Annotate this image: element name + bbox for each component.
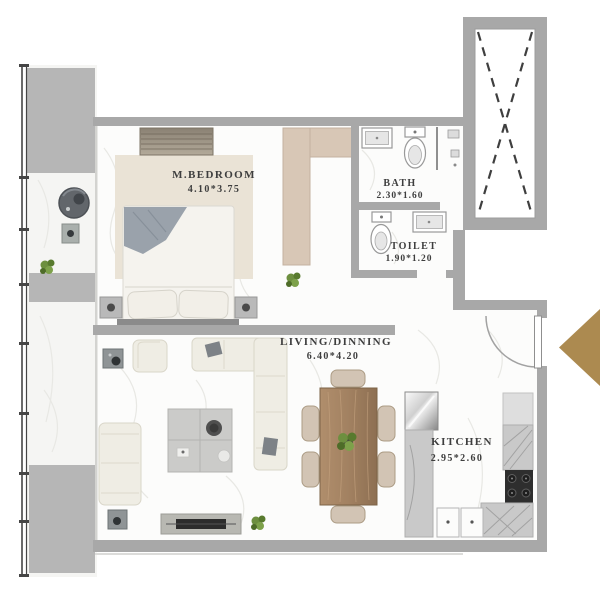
counter-left [405,430,433,537]
wall-right [537,366,547,552]
balcony-wall-bottom [29,465,95,573]
bath-label: BATH [383,178,416,189]
dining-chair-left-2 [302,452,319,487]
wall-bath-toilet [351,202,440,210]
side-table-top-left [103,349,123,368]
bedroom-label: M.BEDROOM [172,169,256,181]
toilet-wc [371,212,391,254]
pillow-right [179,290,229,319]
dining-chair-top [331,370,365,387]
dining-chair-right-2 [378,452,395,487]
counter-corner [481,503,533,537]
floor-plan-svg: M.BEDROOM 4.10*3.75 BATH 2.30*1.60 [0,0,600,612]
wall-bottom [93,540,547,552]
dining-chair-bottom [331,506,365,523]
balcony-wall-top [27,68,95,173]
shaft-void [475,29,535,218]
entrance-door-leaf [535,316,542,368]
toilet-wc-bath [405,127,426,168]
tv-console [161,514,241,534]
sofa-pillow-dark-2 [262,437,278,456]
toilet-dims: 1.90*1.20 [386,254,433,264]
balcony-side-table [62,224,79,243]
loveseat-sofa [99,423,141,505]
floor-plan-canvas: M.BEDROOM 4.10*3.75 BATH 2.30*1.60 [0,0,600,612]
kitchen-label: KITCHEN [431,436,493,448]
nightstand-right [235,297,257,318]
entrance-arrow-icon [559,309,600,386]
side-table-bottom-left [108,510,127,529]
bedroom-dims: 4.10*3.75 [188,184,241,195]
counter-right-top [503,393,533,425]
wall-toilet-bottom [351,270,417,278]
living-label: LIVING/DINNING [280,336,392,348]
wall-toilet-stub [446,270,458,278]
washbasin-toilet [413,212,446,232]
bath-dims: 2.30*1.60 [377,191,424,201]
kitchen-dims: 2.95*2.60 [431,453,484,464]
bedroom-window [95,126,98,325]
wall-bottom-shadow [95,553,463,555]
toilet-label: TOILET [391,241,438,252]
balcony-round-chair [59,188,89,218]
wall-top [93,117,465,126]
pillow-left [127,290,177,320]
living-window [95,335,98,540]
wall-living-top [93,325,395,335]
balcony-wall-mid [29,273,95,302]
dining-chair-right-1 [378,406,395,441]
nightstand-left [100,297,122,318]
wall-hall-top [453,300,547,310]
armchair [133,340,167,372]
service-shaft [463,17,547,230]
washbasin-bath [362,128,392,148]
cooktop [505,470,533,503]
dining-chair-left-1 [302,406,319,441]
coffee-table [168,409,232,472]
wall-bedroom-right [351,125,359,278]
dresser [140,128,213,155]
living-dims: 6.40*4.20 [307,351,360,362]
bed [117,206,239,330]
